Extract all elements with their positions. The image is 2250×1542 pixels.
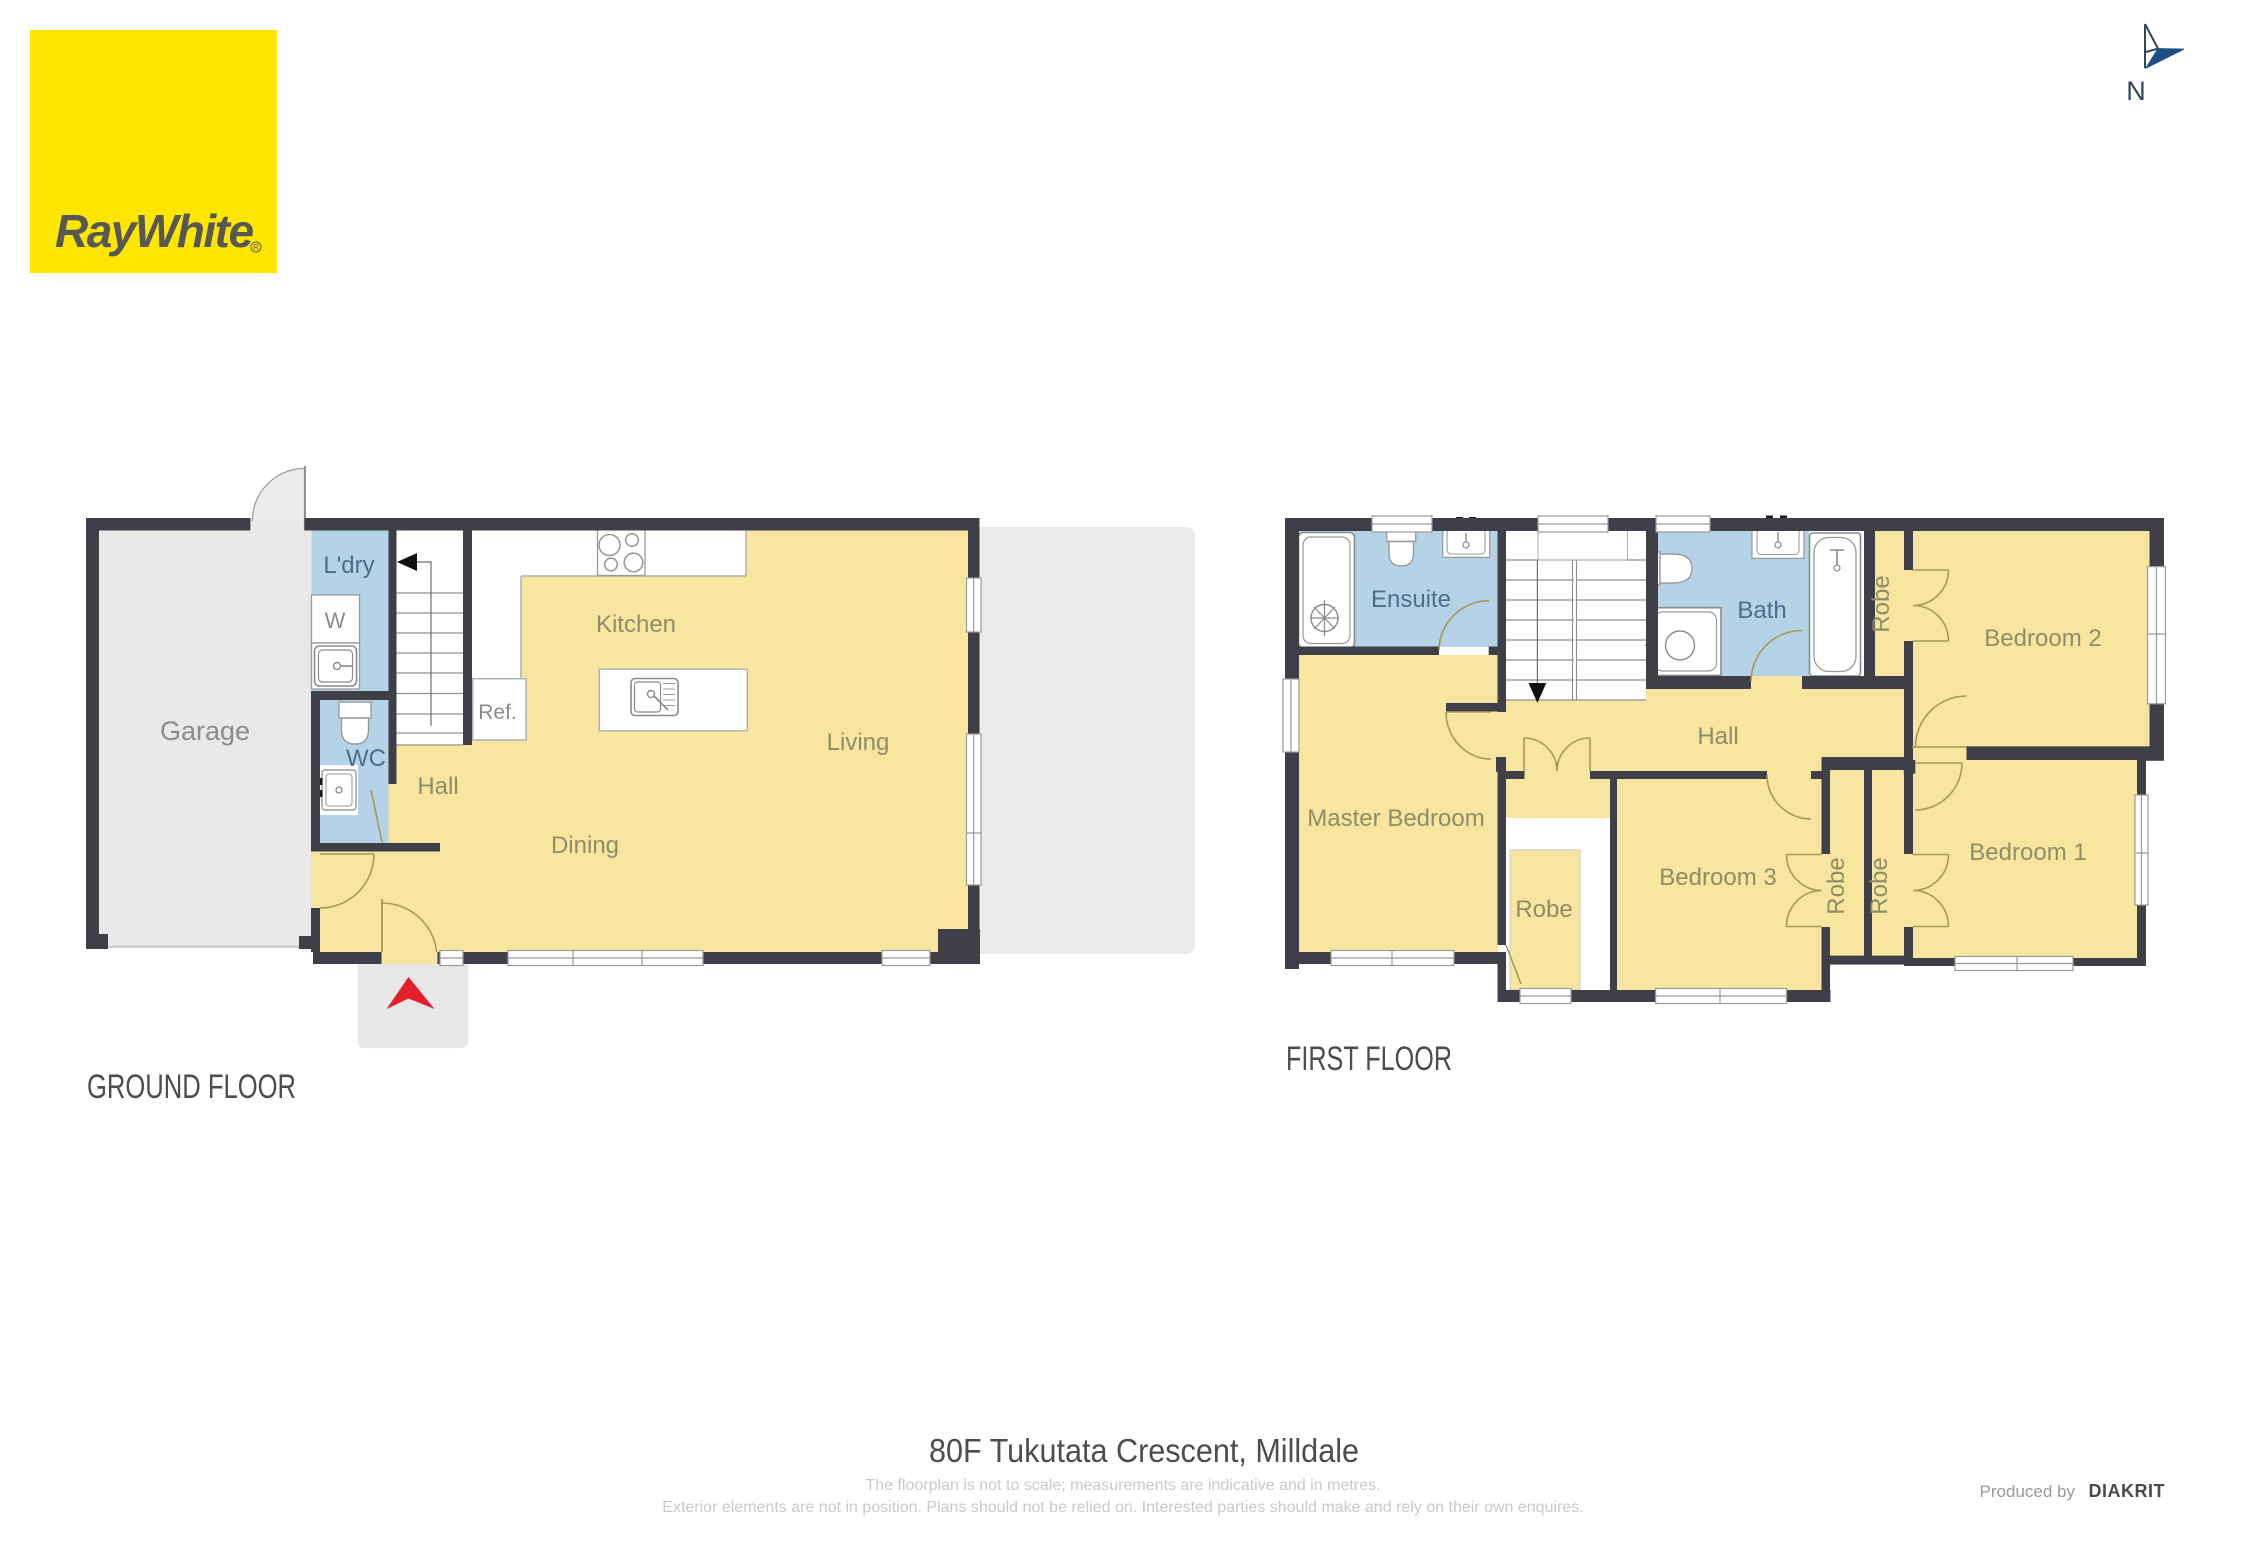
svg-text:WC: WC — [346, 745, 386, 772]
svg-text:Ref.: Ref. — [478, 701, 517, 724]
svg-text:Produced by: Produced by — [1980, 1482, 2076, 1501]
svg-text:R: R — [253, 243, 259, 252]
svg-text:RayWhite: RayWhite — [55, 205, 254, 257]
svg-text:Bedroom 1: Bedroom 1 — [1969, 839, 2086, 866]
svg-text:W: W — [325, 608, 346, 633]
svg-text:DIAKRIT: DIAKRIT — [2089, 1481, 2166, 1501]
svg-text:Robe: Robe — [1866, 857, 1893, 914]
svg-text:Bath: Bath — [1737, 597, 1786, 624]
svg-text:Master Bedroom: Master Bedroom — [1307, 805, 1484, 832]
svg-text:L'dry: L'dry — [323, 552, 374, 579]
svg-text:FIRST FLOOR: FIRST FLOOR — [1286, 1040, 1452, 1078]
svg-text:Ensuite: Ensuite — [1371, 586, 1451, 613]
svg-text:Robe: Robe — [1515, 896, 1572, 923]
svg-text:N: N — [2126, 76, 2146, 106]
svg-text:Dining: Dining — [551, 832, 619, 859]
svg-text:80F Tukutata Crescent, Milldal: 80F Tukutata Crescent, Milldale — [929, 1432, 1359, 1469]
svg-text:Exterior elements are not in p: Exterior elements are not in position. P… — [662, 1499, 1583, 1516]
svg-text:Bedroom 2: Bedroom 2 — [1984, 625, 2101, 652]
svg-text:Living: Living — [827, 729, 890, 756]
svg-text:The floorplan is not to scale;: The floorplan is not to scale; measureme… — [866, 1477, 1381, 1494]
svg-text:Kitchen: Kitchen — [596, 611, 676, 638]
svg-text:Hall: Hall — [1697, 723, 1738, 750]
svg-text:Robe: Robe — [1823, 857, 1850, 914]
svg-text:GROUND FLOOR: GROUND FLOOR — [87, 1068, 296, 1106]
svg-text:Garage: Garage — [160, 716, 250, 746]
svg-text:Bedroom 3: Bedroom 3 — [1659, 864, 1776, 891]
svg-text:Hall: Hall — [417, 773, 458, 800]
svg-text:Robe: Robe — [1868, 575, 1895, 632]
